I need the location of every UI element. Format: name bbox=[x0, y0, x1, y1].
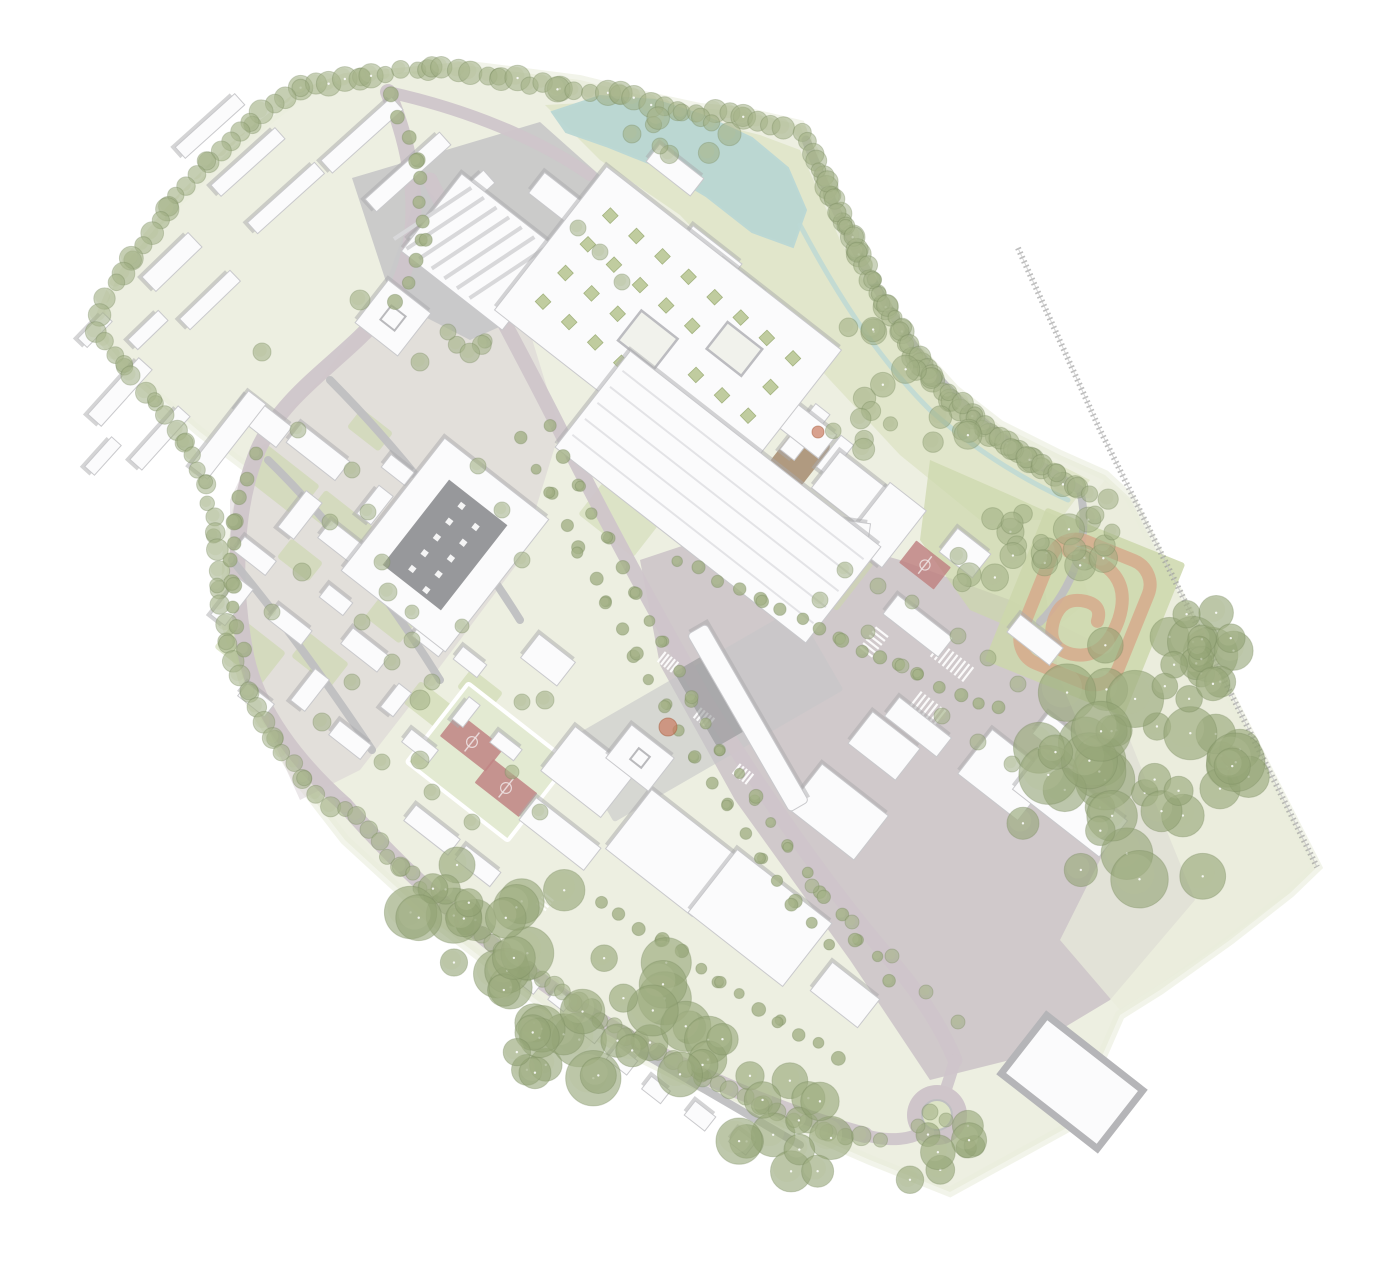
tree bbox=[561, 519, 573, 531]
tree bbox=[885, 949, 899, 963]
tree bbox=[1038, 735, 1073, 770]
tree bbox=[919, 985, 933, 999]
tree bbox=[440, 949, 467, 976]
tree bbox=[692, 561, 705, 574]
tree bbox=[853, 438, 875, 460]
tree bbox=[913, 669, 924, 680]
tree bbox=[575, 481, 585, 491]
tree bbox=[630, 587, 642, 599]
tree bbox=[722, 800, 733, 811]
tree bbox=[406, 866, 420, 880]
tree bbox=[785, 898, 798, 911]
tree bbox=[286, 755, 303, 772]
tree bbox=[939, 1113, 953, 1127]
tree bbox=[390, 110, 404, 124]
tree bbox=[240, 682, 258, 700]
tree bbox=[685, 691, 698, 704]
tree bbox=[1001, 512, 1023, 534]
tree bbox=[873, 1133, 887, 1147]
tree bbox=[409, 153, 424, 168]
tree bbox=[413, 196, 425, 208]
tree bbox=[812, 592, 828, 608]
tree bbox=[772, 117, 794, 139]
tree bbox=[809, 1116, 852, 1159]
tree bbox=[950, 628, 966, 644]
tree bbox=[756, 595, 769, 608]
tree bbox=[250, 447, 263, 460]
tree bbox=[464, 814, 480, 830]
tree bbox=[1196, 667, 1230, 701]
tree bbox=[839, 318, 858, 337]
tree bbox=[632, 922, 645, 935]
tree bbox=[831, 1051, 845, 1065]
tree bbox=[348, 807, 366, 825]
tree bbox=[455, 619, 469, 633]
tree bbox=[749, 789, 763, 803]
tree bbox=[652, 138, 668, 154]
tree bbox=[658, 1052, 703, 1097]
tree bbox=[647, 107, 670, 130]
tree bbox=[503, 1038, 530, 1065]
tree bbox=[565, 82, 583, 100]
tree bbox=[1010, 676, 1026, 692]
tree bbox=[383, 87, 398, 102]
tree bbox=[923, 432, 944, 453]
tree bbox=[411, 751, 429, 769]
tree bbox=[494, 502, 510, 518]
accent-tree bbox=[812, 426, 824, 438]
tree bbox=[929, 406, 952, 429]
tree bbox=[752, 1003, 766, 1017]
tree bbox=[599, 597, 611, 609]
tree bbox=[459, 61, 482, 84]
tree bbox=[297, 771, 312, 786]
tree bbox=[905, 595, 919, 609]
tree bbox=[1000, 543, 1026, 569]
tree bbox=[371, 833, 389, 851]
tree bbox=[766, 817, 776, 827]
tree bbox=[911, 1119, 925, 1133]
tree bbox=[674, 665, 686, 677]
tree bbox=[544, 487, 555, 498]
tree bbox=[716, 1118, 762, 1164]
tree bbox=[696, 963, 707, 974]
tree bbox=[720, 1081, 738, 1099]
tree bbox=[711, 575, 723, 587]
tree bbox=[1180, 853, 1226, 899]
tree bbox=[264, 604, 280, 620]
tree bbox=[1071, 701, 1131, 761]
tree bbox=[740, 828, 752, 840]
tree bbox=[734, 988, 744, 998]
tree bbox=[560, 989, 604, 1033]
tree bbox=[1214, 748, 1250, 784]
tree bbox=[774, 603, 786, 615]
tree bbox=[817, 890, 830, 903]
tree bbox=[531, 464, 541, 474]
building bbox=[681, 1096, 717, 1131]
tree bbox=[322, 514, 338, 530]
tree bbox=[772, 1017, 783, 1028]
tree bbox=[733, 583, 746, 596]
tree bbox=[813, 622, 826, 635]
tree bbox=[404, 632, 420, 648]
tree bbox=[1086, 506, 1104, 524]
tree bbox=[596, 896, 608, 908]
building bbox=[80, 434, 121, 477]
tree bbox=[856, 645, 868, 657]
tree bbox=[933, 681, 945, 693]
tree bbox=[591, 945, 618, 972]
tree bbox=[184, 447, 200, 463]
tree bbox=[718, 122, 741, 145]
accent-tree bbox=[659, 718, 677, 736]
tree bbox=[226, 514, 242, 530]
tree bbox=[896, 1166, 924, 1194]
tree bbox=[1098, 489, 1118, 509]
tree bbox=[848, 933, 862, 947]
tree bbox=[861, 317, 885, 341]
tree bbox=[590, 572, 603, 585]
tree bbox=[873, 651, 886, 664]
tree bbox=[688, 751, 701, 764]
tree bbox=[1033, 550, 1052, 569]
tree bbox=[813, 1037, 824, 1048]
tree bbox=[824, 939, 835, 950]
tree bbox=[514, 694, 530, 710]
tree bbox=[360, 504, 376, 520]
tree bbox=[895, 659, 909, 673]
tree bbox=[485, 898, 526, 939]
tree bbox=[374, 754, 390, 770]
tree bbox=[616, 623, 628, 635]
tree bbox=[992, 701, 1005, 714]
tree bbox=[240, 472, 254, 486]
tree bbox=[536, 691, 554, 709]
tree bbox=[805, 879, 819, 893]
tree bbox=[616, 1034, 649, 1067]
tree bbox=[734, 768, 744, 778]
tree bbox=[1164, 776, 1193, 805]
tree bbox=[861, 625, 875, 639]
tree bbox=[922, 1104, 938, 1120]
tree bbox=[1081, 486, 1097, 502]
tree bbox=[982, 508, 1004, 530]
tree bbox=[515, 431, 528, 444]
tree bbox=[556, 450, 570, 464]
tree bbox=[700, 718, 711, 729]
tree bbox=[1048, 464, 1066, 482]
tree bbox=[698, 142, 719, 163]
tree bbox=[656, 636, 667, 647]
tree bbox=[96, 332, 114, 350]
tree bbox=[801, 1082, 840, 1121]
tree bbox=[108, 274, 125, 291]
tree bbox=[870, 578, 886, 594]
tree bbox=[455, 889, 483, 917]
tree bbox=[612, 908, 625, 921]
tree bbox=[715, 746, 725, 756]
tree bbox=[783, 842, 793, 852]
masterplan-svg bbox=[0, 0, 1377, 1280]
masterplan-page bbox=[0, 0, 1377, 1280]
tree bbox=[1104, 524, 1120, 540]
tree bbox=[470, 458, 486, 474]
tree bbox=[514, 552, 530, 568]
tree bbox=[797, 613, 809, 625]
tree bbox=[414, 171, 427, 184]
tree bbox=[792, 1029, 805, 1042]
tree bbox=[155, 406, 174, 425]
tree bbox=[307, 785, 325, 803]
tree bbox=[672, 556, 683, 567]
tree bbox=[532, 804, 548, 820]
tree bbox=[1004, 756, 1020, 772]
tree bbox=[845, 915, 859, 929]
tree bbox=[1216, 624, 1245, 653]
tree bbox=[570, 220, 586, 236]
tree bbox=[802, 1155, 834, 1187]
tree bbox=[1173, 601, 1200, 628]
tree bbox=[951, 1015, 965, 1029]
tree bbox=[210, 595, 229, 614]
tree bbox=[460, 343, 480, 363]
tree bbox=[121, 366, 140, 385]
tree bbox=[409, 253, 423, 267]
tree bbox=[290, 422, 306, 438]
tree bbox=[703, 115, 719, 131]
tree bbox=[392, 60, 410, 78]
tree bbox=[374, 554, 390, 570]
tree bbox=[953, 574, 971, 592]
tree bbox=[970, 734, 986, 750]
tree bbox=[544, 420, 556, 432]
tree bbox=[1087, 627, 1123, 663]
tree bbox=[630, 647, 643, 660]
tree bbox=[1111, 850, 1169, 908]
tree bbox=[223, 553, 237, 567]
tree bbox=[892, 355, 920, 383]
tree bbox=[411, 353, 429, 371]
tree bbox=[592, 244, 608, 260]
tree bbox=[199, 475, 213, 489]
tree bbox=[1033, 534, 1049, 550]
tree bbox=[825, 423, 841, 439]
tree bbox=[226, 577, 242, 593]
tree bbox=[871, 372, 896, 397]
tree bbox=[405, 605, 419, 619]
tree bbox=[237, 642, 252, 657]
tree bbox=[313, 713, 331, 731]
tree bbox=[715, 976, 727, 988]
tree bbox=[921, 1135, 956, 1170]
tree bbox=[227, 601, 239, 613]
tree bbox=[424, 784, 440, 800]
tree bbox=[1063, 538, 1086, 561]
tree bbox=[835, 633, 849, 647]
site-plan-figure bbox=[0, 0, 1377, 1280]
tree bbox=[586, 508, 598, 520]
tree bbox=[1064, 853, 1097, 886]
tree bbox=[806, 917, 817, 928]
tree bbox=[229, 619, 244, 634]
tree bbox=[614, 274, 630, 290]
tree bbox=[210, 578, 225, 593]
tree bbox=[396, 895, 442, 941]
tree bbox=[609, 984, 637, 1012]
tree bbox=[572, 547, 583, 558]
tree bbox=[951, 1123, 986, 1158]
tree bbox=[424, 674, 440, 690]
tree bbox=[227, 537, 240, 550]
tree bbox=[492, 936, 535, 979]
tree bbox=[1007, 807, 1039, 839]
tree bbox=[350, 290, 370, 310]
tree bbox=[754, 853, 765, 864]
tree bbox=[384, 654, 400, 670]
tree bbox=[354, 614, 370, 630]
tree bbox=[883, 974, 896, 987]
tree bbox=[379, 583, 397, 601]
tree bbox=[387, 294, 402, 309]
tree bbox=[659, 701, 671, 713]
tree bbox=[402, 130, 416, 144]
tree bbox=[706, 777, 718, 789]
tree bbox=[643, 674, 653, 684]
tree bbox=[744, 1082, 781, 1119]
tree bbox=[802, 867, 813, 878]
tree bbox=[980, 650, 996, 666]
tree bbox=[872, 951, 883, 962]
tree bbox=[344, 674, 360, 690]
tree bbox=[440, 324, 456, 340]
tree bbox=[419, 233, 432, 246]
tree bbox=[707, 1023, 739, 1055]
tree bbox=[934, 708, 950, 724]
tree bbox=[852, 1126, 871, 1145]
tree bbox=[505, 765, 519, 779]
tree bbox=[973, 698, 984, 709]
tree bbox=[954, 421, 982, 449]
tree bbox=[232, 490, 246, 504]
tree bbox=[410, 690, 430, 710]
tree bbox=[1188, 636, 1212, 660]
tree bbox=[950, 547, 967, 564]
tree bbox=[344, 462, 360, 478]
tree bbox=[981, 564, 1008, 591]
tree bbox=[850, 408, 871, 429]
tree bbox=[580, 1057, 616, 1093]
tree bbox=[1152, 673, 1178, 699]
tree bbox=[623, 125, 641, 143]
tree bbox=[616, 560, 630, 574]
tree bbox=[837, 562, 853, 578]
tree bbox=[402, 277, 415, 290]
tree bbox=[147, 393, 161, 407]
tree bbox=[253, 343, 271, 361]
tree bbox=[377, 66, 393, 82]
tree bbox=[293, 563, 311, 581]
tree bbox=[644, 616, 655, 627]
tree bbox=[543, 870, 584, 911]
tree bbox=[771, 875, 782, 886]
tree bbox=[1086, 816, 1116, 846]
tree bbox=[416, 215, 429, 228]
tree bbox=[883, 417, 897, 431]
tree bbox=[601, 532, 612, 543]
tree bbox=[955, 689, 968, 702]
